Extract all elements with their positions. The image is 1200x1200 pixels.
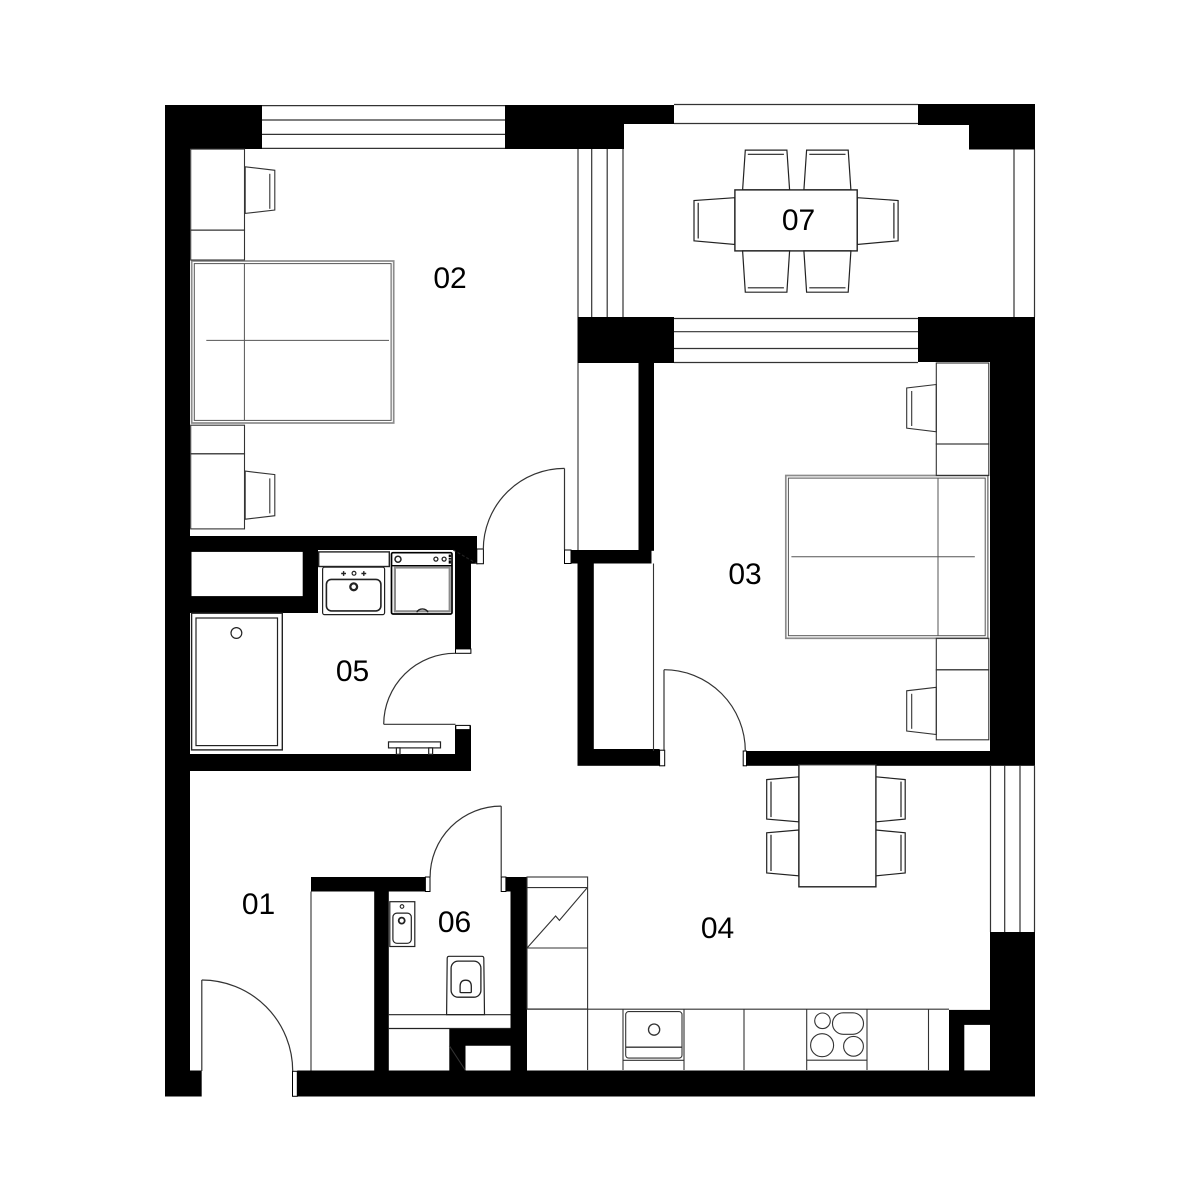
svg-text:03: 03 <box>728 558 761 591</box>
svg-text:04: 04 <box>701 912 734 945</box>
svg-text:07: 07 <box>782 204 815 237</box>
svg-text:01: 01 <box>242 888 275 921</box>
svg-text:06: 06 <box>438 906 471 939</box>
svg-text:05: 05 <box>336 655 369 688</box>
svg-text:02: 02 <box>433 262 466 295</box>
